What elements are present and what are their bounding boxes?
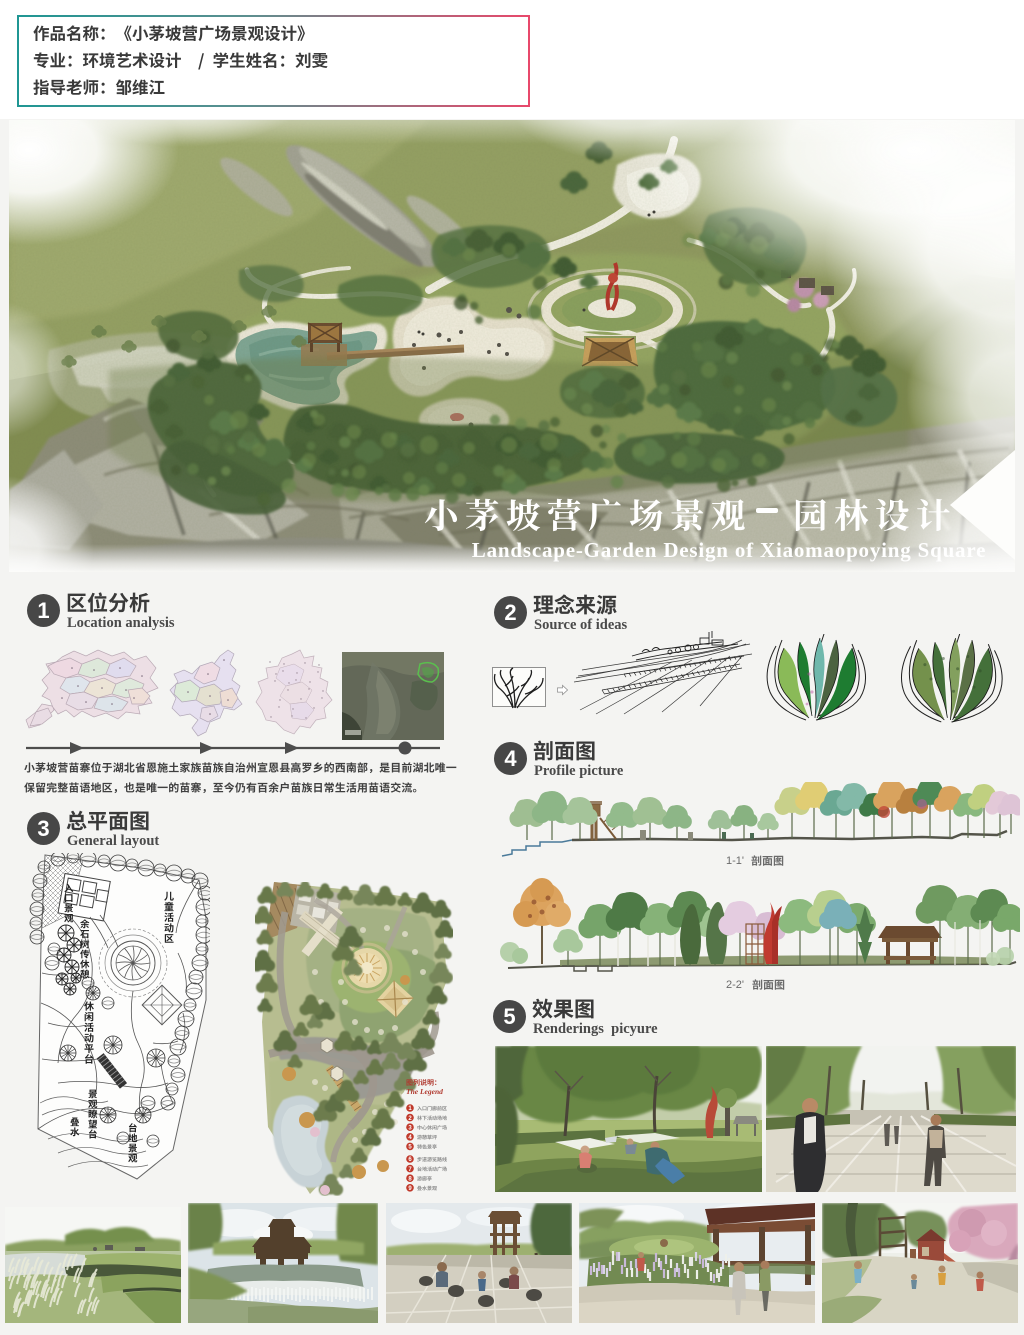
svg-text:Landscape-Garden Design of Xia: Landscape-Garden Design of Xiaomaopoying… bbox=[472, 538, 986, 562]
svg-text:The Legend: The Legend bbox=[406, 1087, 443, 1096]
